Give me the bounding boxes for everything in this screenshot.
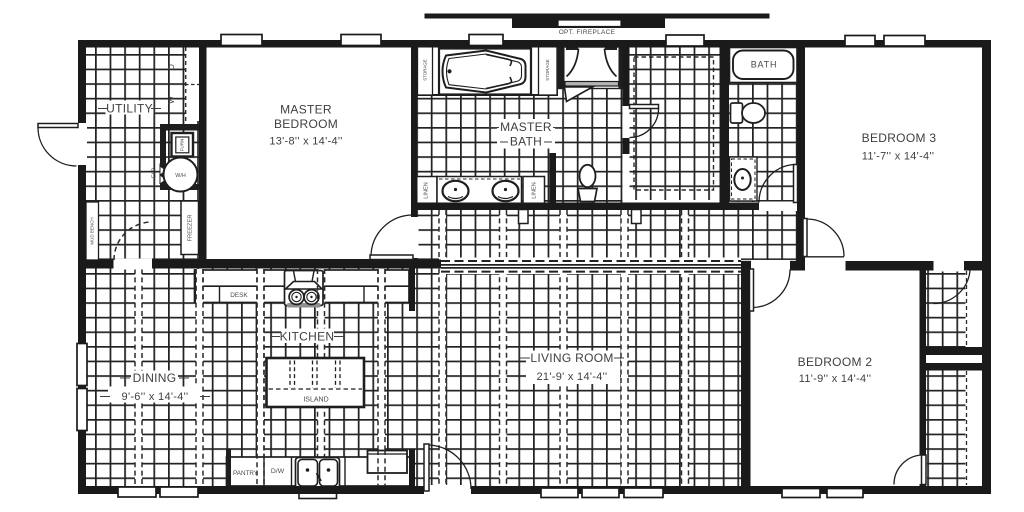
svg-text:W: W <box>167 96 176 104</box>
svg-text:LINEN: LINEN <box>423 182 429 198</box>
svg-text:BEDROOM 3: BEDROOM 3 <box>862 131 937 145</box>
svg-text:UTILITY: UTILITY <box>106 102 153 116</box>
svg-text:MUD BENCH: MUD BENCH <box>89 217 94 244</box>
svg-text:DINING: DINING <box>133 371 177 385</box>
svg-text:STORAGE: STORAGE <box>545 59 550 80</box>
svg-text:FURN: FURN <box>180 139 185 152</box>
svg-text:ISLAND: ISLAND <box>303 397 328 404</box>
svg-text:13'-8'' x 14'-4'': 13'-8'' x 14'-4'' <box>269 136 342 148</box>
svg-text:BATH: BATH <box>510 135 542 149</box>
svg-text:PANTRY: PANTRY <box>233 470 259 477</box>
svg-text:KITCHEN: KITCHEN <box>280 330 335 344</box>
svg-text:11'-7'' x 14'-4'': 11'-7'' x 14'-4'' <box>862 151 935 163</box>
svg-text:MASTER: MASTER <box>280 103 332 117</box>
svg-text:ELP: ELP <box>151 168 157 179</box>
svg-text:DESK: DESK <box>230 292 248 299</box>
svg-text:9'-6'' x 14'-4'': 9'-6'' x 14'-4'' <box>122 391 189 403</box>
svg-text:D/W: D/W <box>271 468 285 475</box>
svg-text:FREEZER: FREEZER <box>188 214 194 241</box>
svg-text:W/H: W/H <box>175 173 186 179</box>
svg-text:OPT. FIREPLACE: OPT. FIREPLACE <box>559 29 616 36</box>
svg-text:BATH: BATH <box>751 60 778 70</box>
svg-text:D: D <box>167 64 176 70</box>
svg-text:BEDROOM 2: BEDROOM 2 <box>798 355 873 369</box>
svg-text:MASTER: MASTER <box>500 120 552 134</box>
svg-text:11'-9'' x 14'-4'': 11'-9'' x 14'-4'' <box>799 373 872 385</box>
svg-text:LIVING ROOM: LIVING ROOM <box>530 351 613 365</box>
svg-text:STORAGE: STORAGE <box>423 59 428 80</box>
svg-text:21'-9' x 14'-4'': 21'-9' x 14'-4'' <box>537 371 608 383</box>
svg-text:BEDROOM: BEDROOM <box>274 117 338 131</box>
svg-text:LINEN: LINEN <box>531 182 537 198</box>
